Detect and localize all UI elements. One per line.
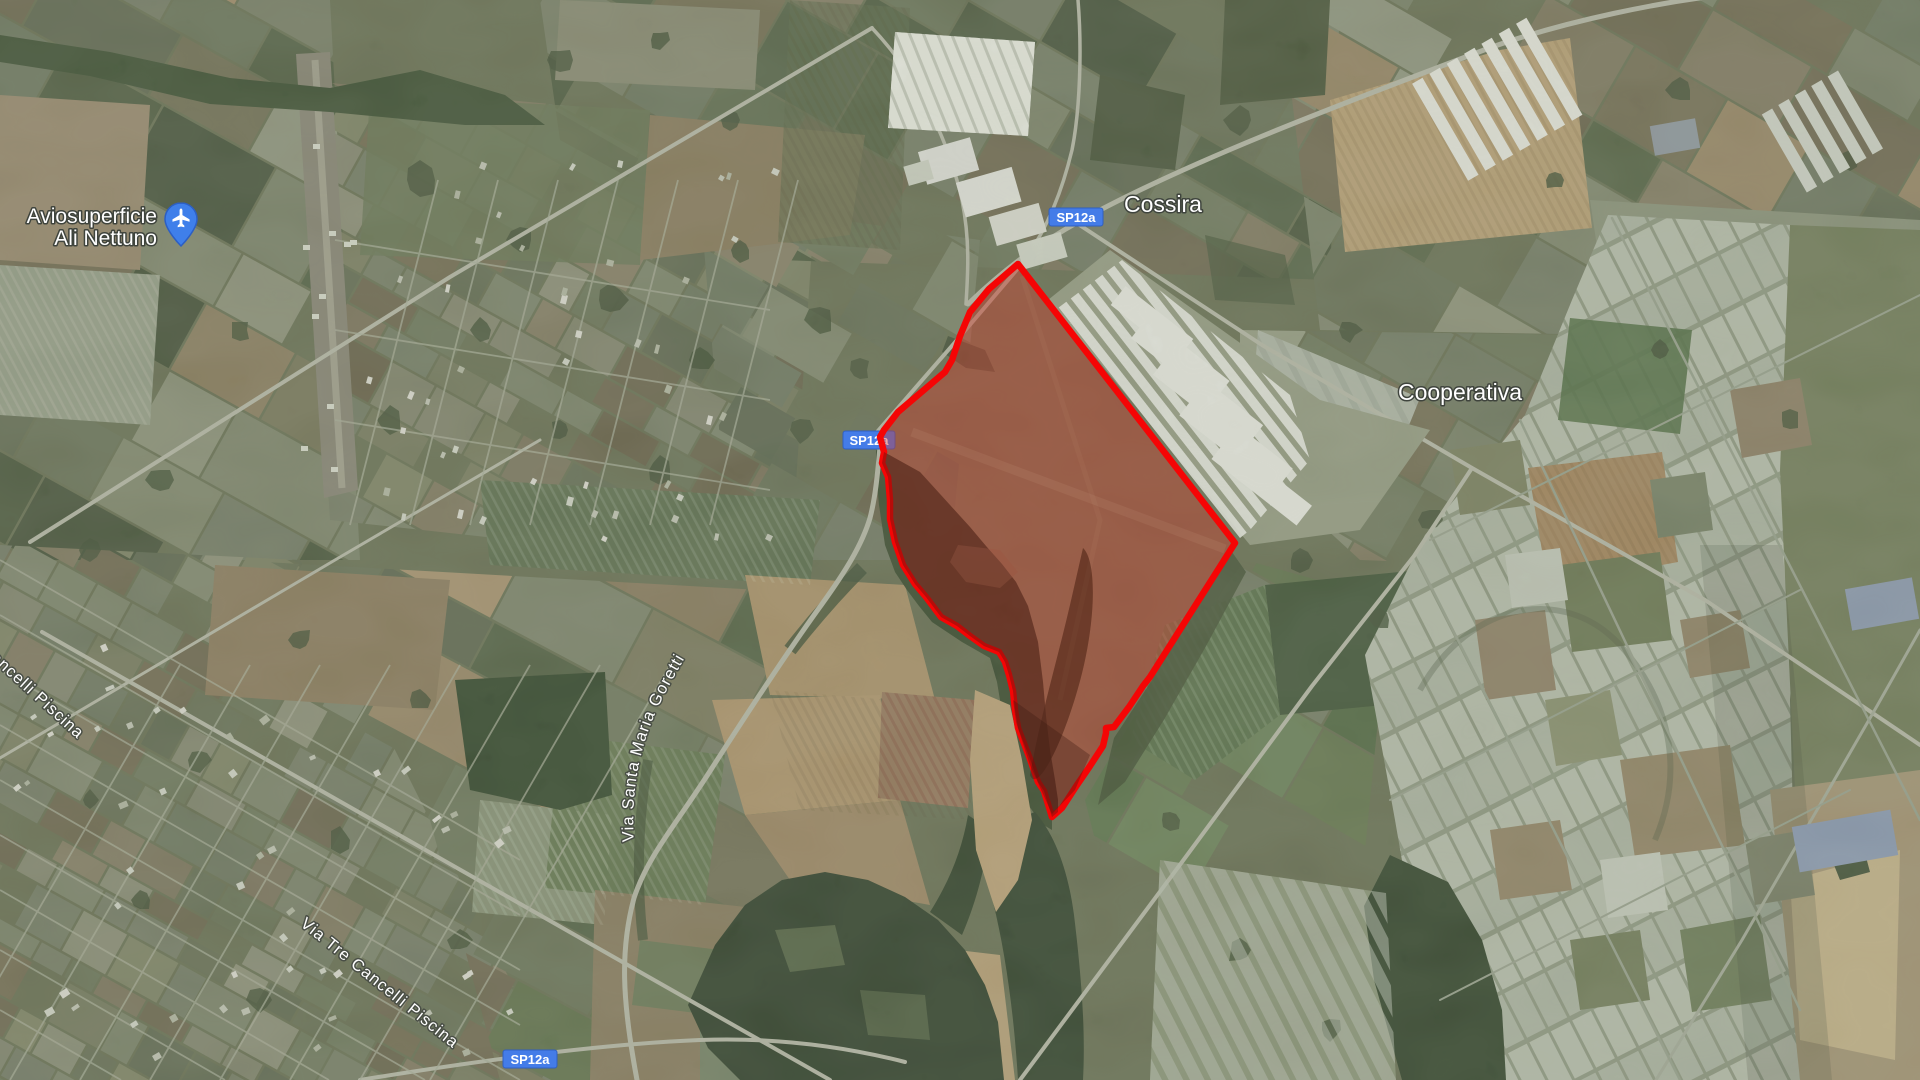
svg-text:Cossira: Cossira bbox=[1124, 191, 1202, 217]
svg-text:Cooperativa: Cooperativa bbox=[1398, 379, 1522, 405]
svg-text:SP12a: SP12a bbox=[1056, 210, 1096, 225]
svg-text:SP12a: SP12a bbox=[510, 1052, 550, 1067]
svg-text:Ali Nettuno: Ali Nettuno bbox=[54, 227, 157, 250]
svg-text:Aviosuperficie: Aviosuperficie bbox=[27, 205, 157, 228]
